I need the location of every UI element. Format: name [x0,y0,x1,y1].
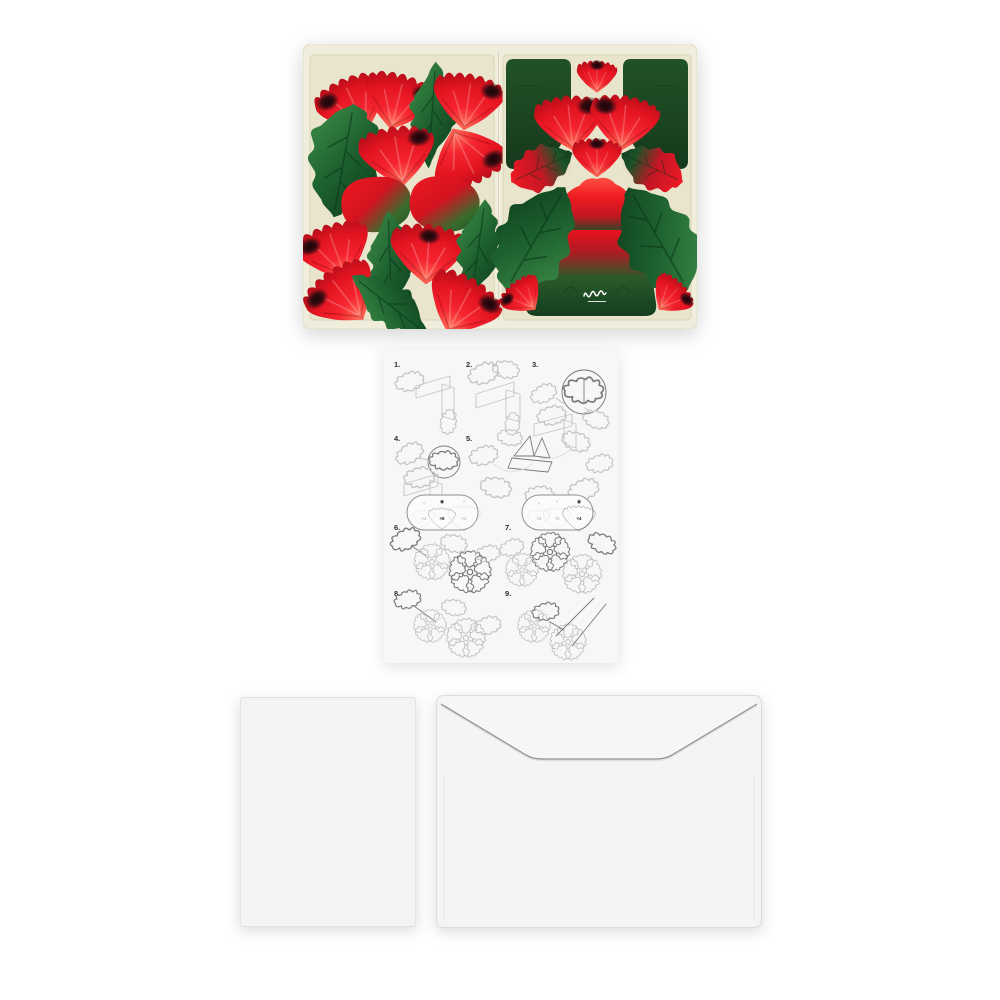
callout-mark: × [423,501,426,507]
step-number: 6. [394,523,400,532]
step-number: 7. [505,523,511,532]
product-photo: 1. 2. 3. 4. 5. 6. 7. 8. 9. [0,0,1000,1000]
step-number: 9. [505,589,511,598]
envelope [436,695,762,928]
brand-url-line [588,301,606,302]
count-callout: × ×4 × ×8 ◉ ×4 [522,495,595,531]
callout-count: ×8 [439,516,445,521]
callout-mark: × [556,499,559,505]
die-cut-sheet [303,44,697,329]
count-callout: × ×4 ◉ ×8 × ×4 [407,495,480,531]
callout-count: ×4 [536,516,542,521]
callout-count: ×4 [576,516,582,521]
step-number: 1. [394,360,400,369]
blank-card [240,697,416,927]
step-number: 4. [394,434,400,443]
step-number: 3. [532,360,538,369]
step-number: 8. [394,589,400,598]
callout-mark: × [538,501,541,507]
callout-count: ×4 [421,516,427,521]
step-number: 2. [466,360,472,369]
callout-count: ×8 [554,516,560,521]
card-sheen [244,701,412,923]
callout-mark: × [463,499,466,505]
callout-count: ×4 [461,516,467,521]
instruction-sheet: 1. 2. 3. 4. 5. 6. 7. 8. 9. [384,350,618,663]
step-number: 5. [466,434,472,443]
